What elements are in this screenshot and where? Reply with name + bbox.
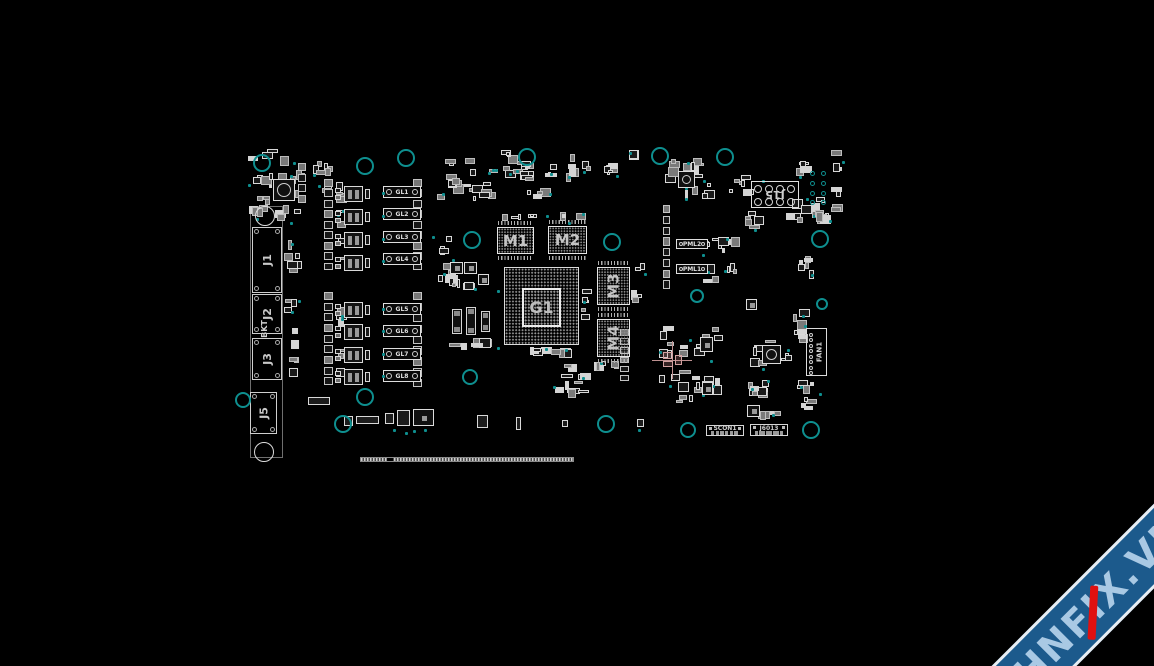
mounting-hole: [356, 388, 374, 406]
pad-strip-segment[interactable]: [620, 366, 629, 373]
pad-strip-segment[interactable]: [298, 174, 306, 182]
smd-part[interactable]: [506, 152, 509, 156]
smd-part[interactable]: [452, 178, 460, 184]
pad-strip-segment[interactable]: [663, 259, 670, 267]
pad-strip-segment[interactable]: [663, 248, 670, 256]
mosfet[interactable]: [344, 209, 363, 225]
pcie-power-connector-J15[interactable]: J15: [751, 181, 799, 208]
smd-part[interactable]: [295, 253, 300, 260]
smd-part[interactable]: [689, 395, 693, 402]
pad-strip-segment[interactable]: [298, 184, 306, 192]
smd-part[interactable]: [561, 374, 573, 379]
inductor-PML1[interactable]: PML1: [676, 264, 708, 274]
smd-part[interactable]: [503, 166, 510, 171]
connector-pad: [753, 426, 756, 429]
smd-part[interactable]: [465, 158, 475, 163]
smd-part[interactable]: [804, 258, 813, 262]
smd-part[interactable]: [786, 213, 794, 220]
smd-part[interactable]: [335, 257, 341, 262]
pad-strip-segment[interactable]: [324, 345, 333, 353]
smd-part[interactable]: [525, 177, 535, 181]
mosfet[interactable]: [344, 255, 363, 271]
ic-pad: [469, 266, 474, 271]
ic-chip[interactable]: [700, 337, 713, 352]
pad-strip-segment[interactable]: [663, 216, 670, 224]
smd-part[interactable]: [734, 179, 740, 183]
pad-strip-segment[interactable]: [620, 375, 629, 382]
slot-connector-J5[interactable]: J5: [250, 392, 277, 434]
mosfet-pad: [355, 213, 359, 222]
ic-chip[interactable]: [450, 262, 463, 274]
smd-part[interactable]: [581, 308, 586, 312]
smd-part[interactable]: [516, 417, 521, 430]
smd-part[interactable]: [741, 175, 751, 179]
smd-part[interactable]: [335, 234, 341, 239]
test-point: [382, 308, 385, 311]
barrel-connector[interactable]: [254, 442, 274, 462]
test-point: [800, 386, 803, 389]
slot-corner-hole: [254, 286, 259, 291]
inductor-GL8[interactable]: GL8: [383, 370, 421, 382]
smd-part[interactable]: [727, 266, 730, 273]
smd-part[interactable]: [733, 269, 737, 274]
test-point: [393, 429, 396, 432]
via-ring: [821, 181, 826, 186]
test-point: [553, 386, 556, 389]
pad-strip-segment[interactable]: [324, 303, 333, 311]
inductor-GL6[interactable]: GL6: [383, 325, 421, 337]
pad-strip-segment[interactable]: [324, 189, 333, 197]
smd-part[interactable]: [671, 159, 675, 164]
smd-part[interactable]: [294, 209, 301, 214]
gpu-die: G1: [522, 288, 561, 327]
smd-part[interactable]: [446, 236, 452, 242]
smd-part[interactable]: [555, 387, 564, 394]
smd-part[interactable]: [741, 180, 746, 186]
smd-part[interactable]: [801, 205, 812, 215]
smd-part[interactable]: [753, 347, 757, 356]
smd-part[interactable]: [550, 164, 558, 170]
smd-part[interactable]: [365, 212, 370, 222]
test-point: [659, 351, 662, 354]
memory-pad-row: [498, 256, 533, 260]
pad-strip-segment[interactable]: [413, 200, 422, 208]
inductor-terminal: [386, 351, 392, 357]
mosfet[interactable]: [344, 369, 363, 385]
smd-part[interactable]: [289, 368, 298, 377]
mosfet[interactable]: [344, 347, 363, 363]
inductor-terminal: [412, 328, 418, 334]
smd-part[interactable]: [831, 187, 842, 192]
smd-part[interactable]: [533, 194, 543, 199]
smd-part[interactable]: [335, 378, 341, 383]
test-point: [819, 393, 822, 396]
smd-part[interactable]: [659, 375, 665, 383]
smd-part[interactable]: [801, 403, 806, 408]
smd-part[interactable]: [464, 282, 474, 291]
smd-part[interactable]: [316, 170, 327, 174]
boardview-canvas: J1J2J3J5BKTM1M2M3M4G1GL1GL2GL3GL4GL5GL6G…: [0, 0, 1154, 666]
smd-part[interactable]: [470, 169, 476, 176]
power-pin: [776, 198, 784, 206]
pad-strip-segment[interactable]: [413, 292, 422, 300]
smd-part[interactable]: [785, 355, 793, 362]
smd-part[interactable]: [729, 189, 733, 193]
pad-strip-segment[interactable]: [324, 292, 333, 300]
smd-part[interactable]: [797, 329, 805, 335]
smd-part[interactable]: [774, 411, 781, 416]
memory-pad-row: [549, 256, 586, 260]
mounting-hole: [811, 230, 829, 248]
pad-strip-segment[interactable]: [663, 280, 670, 288]
capacitor[interactable]: [481, 311, 490, 332]
smd-part[interactable]: [335, 311, 341, 316]
test-point: [293, 162, 296, 165]
smd-part[interactable]: [280, 156, 288, 166]
mounting-hole: [463, 231, 481, 249]
pad-strip-segment[interactable]: [663, 205, 670, 213]
pad-strip-segment[interactable]: [324, 335, 333, 343]
smd-part[interactable]: [335, 211, 341, 216]
fan-pin: [809, 338, 813, 342]
smd-part[interactable]: [568, 389, 576, 398]
smd-part[interactable]: [452, 283, 456, 286]
smd-part[interactable]: [365, 235, 370, 245]
connector-J6013[interactable]: J6013: [750, 424, 788, 436]
smd-part[interactable]: [760, 411, 765, 420]
pad-strip-segment[interactable]: [324, 221, 333, 229]
fan-pin: [809, 366, 813, 370]
inductor-terminal: [386, 373, 392, 379]
pad-strip-segment[interactable]: [324, 179, 333, 187]
smd-part[interactable]: [335, 195, 341, 200]
ic-pad: [455, 266, 460, 271]
smd-part[interactable]: [586, 166, 591, 171]
test-point: [313, 174, 316, 177]
pad-strip-segment[interactable]: [413, 221, 422, 229]
smd-part[interactable]: [743, 189, 751, 196]
mosfet-pad: [348, 259, 352, 268]
memory-pad-row: [498, 221, 533, 225]
smd-part[interactable]: [702, 193, 708, 199]
capacitor-terminal: [483, 325, 488, 330]
smd-part[interactable]: [754, 216, 763, 225]
ic-chip[interactable]: [746, 299, 757, 310]
inductor-GL5[interactable]: GL5: [383, 303, 421, 315]
test-point: [811, 274, 814, 277]
smd-part[interactable]: [449, 343, 461, 347]
smd-part[interactable]: [562, 214, 567, 218]
test-point: [405, 432, 408, 435]
inductor-PML2[interactable]: PML2: [676, 239, 708, 249]
smd-part[interactable]: [483, 182, 491, 186]
pad-strip-segment[interactable]: [324, 313, 333, 321]
smd-part[interactable]: [291, 299, 297, 307]
connector-pad: [730, 431, 733, 435]
test-point: [669, 385, 672, 388]
smd-part[interactable]: [533, 348, 542, 352]
smd-part[interactable]: [335, 241, 341, 246]
smd-part[interactable]: [679, 370, 691, 374]
slot-connector-J3[interactable]: J3: [252, 338, 282, 380]
test-point: [772, 414, 775, 417]
ic-chip[interactable]: [678, 171, 695, 188]
smd-part[interactable]: [335, 349, 341, 354]
mosfet[interactable]: [344, 232, 363, 248]
smd-part[interactable]: [578, 390, 589, 393]
smd-part[interactable]: [632, 297, 639, 303]
pad-strip-segment[interactable]: [324, 231, 333, 239]
smd-part[interactable]: [335, 326, 341, 331]
smd-part[interactable]: [335, 371, 341, 376]
smd-part[interactable]: [793, 314, 797, 322]
ic-chip[interactable]: [413, 409, 434, 426]
connector-SCON1[interactable]: SCON1: [706, 425, 744, 436]
slot-connector-J1[interactable]: J1: [252, 227, 282, 293]
smd-part[interactable]: [365, 372, 370, 382]
mosfet[interactable]: [344, 186, 363, 202]
ic-pad: [750, 303, 755, 308]
smd-part[interactable]: [291, 340, 300, 350]
mosfet[interactable]: [344, 324, 363, 340]
memory-pad-row: [598, 261, 629, 265]
smd-part[interactable]: [833, 163, 840, 172]
selected-part-highlight: [663, 361, 673, 367]
inductor-GL2[interactable]: GL2: [383, 208, 421, 220]
smd-part[interactable]: [731, 237, 739, 247]
smd-part[interactable]: [461, 343, 467, 350]
mounting-hole: [680, 422, 696, 438]
capacitor-terminal: [454, 311, 460, 316]
component-label: M4: [596, 323, 632, 354]
slot-corner-hole: [254, 229, 259, 234]
test-point: [565, 349, 568, 352]
smd-part[interactable]: [335, 218, 341, 223]
capacitor-terminal: [483, 313, 488, 318]
smd-part[interactable]: [287, 261, 298, 270]
smd-part[interactable]: [385, 413, 394, 424]
smd-part[interactable]: [745, 219, 752, 227]
mounting-hole: [716, 148, 734, 166]
inductor-GL1[interactable]: GL1: [383, 186, 421, 198]
test-point: [799, 176, 802, 179]
pad-strip-segment[interactable]: [324, 263, 333, 271]
smd-part[interactable]: [551, 349, 562, 355]
memory-M1[interactable]: M1: [497, 227, 534, 254]
smd-part[interactable]: [335, 304, 341, 309]
memory-M3[interactable]: M3: [597, 267, 630, 305]
mounting-hole: [253, 154, 271, 172]
smd-part[interactable]: [445, 159, 455, 163]
inductor-terminal: [412, 256, 418, 262]
smd-part[interactable]: [365, 305, 370, 315]
smd-part[interactable]: [564, 364, 571, 368]
power-pin: [765, 198, 773, 206]
capacitor-terminal: [454, 327, 460, 332]
smd-part[interactable]: [277, 214, 285, 221]
smd-part[interactable]: [663, 326, 675, 331]
ic-chip[interactable]: [747, 405, 760, 417]
fan-pin: [809, 355, 813, 359]
pad-strip-segment[interactable]: [324, 252, 333, 260]
connector-pad: [734, 431, 737, 435]
pad-strip-segment[interactable]: [663, 270, 670, 278]
test-point: [638, 429, 641, 432]
pad-strip-segment[interactable]: [663, 237, 670, 245]
gpu-G1[interactable]: G1: [504, 267, 579, 345]
inductor-GL4[interactable]: GL4: [383, 253, 421, 265]
capacitor[interactable]: [466, 307, 476, 335]
smd-part[interactable]: [365, 189, 370, 199]
smd-part[interactable]: [635, 267, 642, 271]
test-point: [689, 339, 692, 342]
smd-part[interactable]: [471, 343, 483, 347]
smd-part[interactable]: [518, 214, 521, 220]
smd-part[interactable]: [679, 395, 687, 401]
smd-part[interactable]: [457, 279, 460, 288]
inductor-terminal: [412, 373, 418, 379]
capacitor-terminal: [468, 328, 474, 333]
test-point: [724, 270, 727, 273]
smd-part[interactable]: [365, 350, 370, 360]
smd-part[interactable]: [722, 248, 725, 253]
smd-part[interactable]: [816, 212, 823, 222]
smd-part[interactable]: [284, 253, 293, 261]
smd-part[interactable]: [712, 276, 718, 284]
smd-part[interactable]: [798, 264, 804, 271]
test-point: [382, 260, 385, 263]
inductor-terminal: [412, 306, 418, 312]
smd-part[interactable]: [678, 382, 689, 391]
smd-part[interactable]: [439, 248, 448, 254]
mounting-hole: [802, 421, 820, 439]
smd-part[interactable]: [696, 382, 700, 391]
smd-part[interactable]: [253, 177, 261, 183]
smd-part[interactable]: [680, 345, 688, 349]
smd-part[interactable]: [570, 154, 575, 163]
pad-strip-segment[interactable]: [324, 200, 333, 208]
smd-part[interactable]: [810, 382, 814, 386]
smd-part[interactable]: [265, 199, 269, 205]
smd-part[interactable]: [692, 376, 701, 380]
smd-part[interactable]: [660, 331, 667, 339]
smd-part[interactable]: [831, 207, 841, 212]
mounting-hole: [603, 233, 621, 251]
ic-chip[interactable]: [464, 262, 477, 274]
ic-circle-mark: [682, 175, 691, 184]
mounting-hole: [356, 157, 374, 175]
test-point: [546, 215, 549, 218]
smd-part[interactable]: [438, 275, 443, 283]
smd-part[interactable]: [707, 183, 711, 187]
smd-part[interactable]: [365, 327, 370, 337]
ic-chip[interactable]: [273, 179, 295, 201]
pad-strip-segment[interactable]: [298, 163, 306, 171]
fan-pin: [809, 344, 813, 348]
inductor-GL3[interactable]: GL3: [383, 231, 421, 243]
smd-part[interactable]: [477, 415, 488, 428]
via-ring: [821, 171, 826, 176]
mosfet-pad: [348, 373, 352, 382]
capacitor[interactable]: [452, 309, 462, 334]
ic-chip[interactable]: [478, 274, 489, 285]
memory-M2[interactable]: M2: [548, 226, 587, 254]
test-point: [802, 315, 805, 318]
smd-part[interactable]: [283, 205, 289, 214]
inductor-GL7[interactable]: GL7: [383, 348, 421, 360]
mosfet[interactable]: [344, 302, 363, 318]
smd-part[interactable]: [397, 410, 410, 426]
barrel-connector[interactable]: [255, 206, 275, 226]
smd-part[interactable]: [712, 327, 719, 332]
pad-strip-segment[interactable]: [324, 377, 333, 385]
smd-part[interactable]: [765, 340, 776, 344]
smd-part[interactable]: [267, 149, 278, 153]
via-ring: [810, 200, 815, 205]
smd-part[interactable]: [804, 397, 808, 402]
smd-part[interactable]: [335, 264, 341, 269]
smd-part[interactable]: [797, 217, 804, 223]
smd-part[interactable]: [335, 356, 341, 361]
pad-strip-segment[interactable]: [413, 314, 422, 322]
pad-strip-segment[interactable]: [324, 324, 333, 332]
smd-part[interactable]: [530, 214, 533, 217]
smd-part[interactable]: [308, 397, 330, 405]
smd-part[interactable]: [608, 170, 613, 173]
smd-part[interactable]: [292, 328, 298, 334]
bracket-label-BKT: BKT: [255, 314, 273, 344]
smd-part[interactable]: [335, 188, 341, 193]
smd-part[interactable]: [714, 335, 723, 341]
smd-part[interactable]: [574, 381, 583, 385]
inductor-terminal: [701, 242, 705, 246]
test-point: [842, 161, 845, 164]
smd-part[interactable]: [581, 314, 590, 320]
mosfet-pad: [348, 306, 352, 315]
smd-part[interactable]: [676, 400, 682, 403]
pad-strip-segment[interactable]: [663, 227, 670, 235]
smd-part[interactable]: [527, 190, 531, 195]
smd-part[interactable]: [582, 289, 592, 294]
fan-connector-FAN1[interactable]: FAN1: [806, 328, 827, 376]
pad-strip-segment[interactable]: [324, 356, 333, 364]
pad-strip-segment[interactable]: [324, 242, 333, 250]
ic-chip[interactable]: [702, 382, 713, 395]
ic-chip[interactable]: [762, 345, 781, 364]
smd-part[interactable]: [365, 258, 370, 268]
smd-part[interactable]: [803, 385, 810, 394]
smd-part[interactable]: [479, 192, 490, 198]
memory-M4[interactable]: M4: [597, 319, 630, 357]
pad-strip-segment[interactable]: [324, 367, 333, 375]
memory-pad-row: [598, 359, 629, 363]
smd-part[interactable]: [289, 357, 298, 363]
test-point: [583, 301, 586, 304]
pad-strip-segment[interactable]: [324, 210, 333, 218]
smd-part[interactable]: [637, 419, 644, 427]
test-point: [432, 236, 435, 239]
smd-part[interactable]: [691, 162, 695, 171]
smd-part[interactable]: [831, 150, 842, 156]
pad-strip-segment[interactable]: [298, 195, 306, 203]
smd-part[interactable]: [335, 333, 341, 338]
smd-part[interactable]: [473, 196, 476, 201]
test-point: [382, 215, 385, 218]
smd-part[interactable]: [356, 416, 379, 424]
smd-part[interactable]: [562, 420, 568, 427]
test-point: [549, 193, 552, 196]
test-point: [545, 348, 548, 351]
